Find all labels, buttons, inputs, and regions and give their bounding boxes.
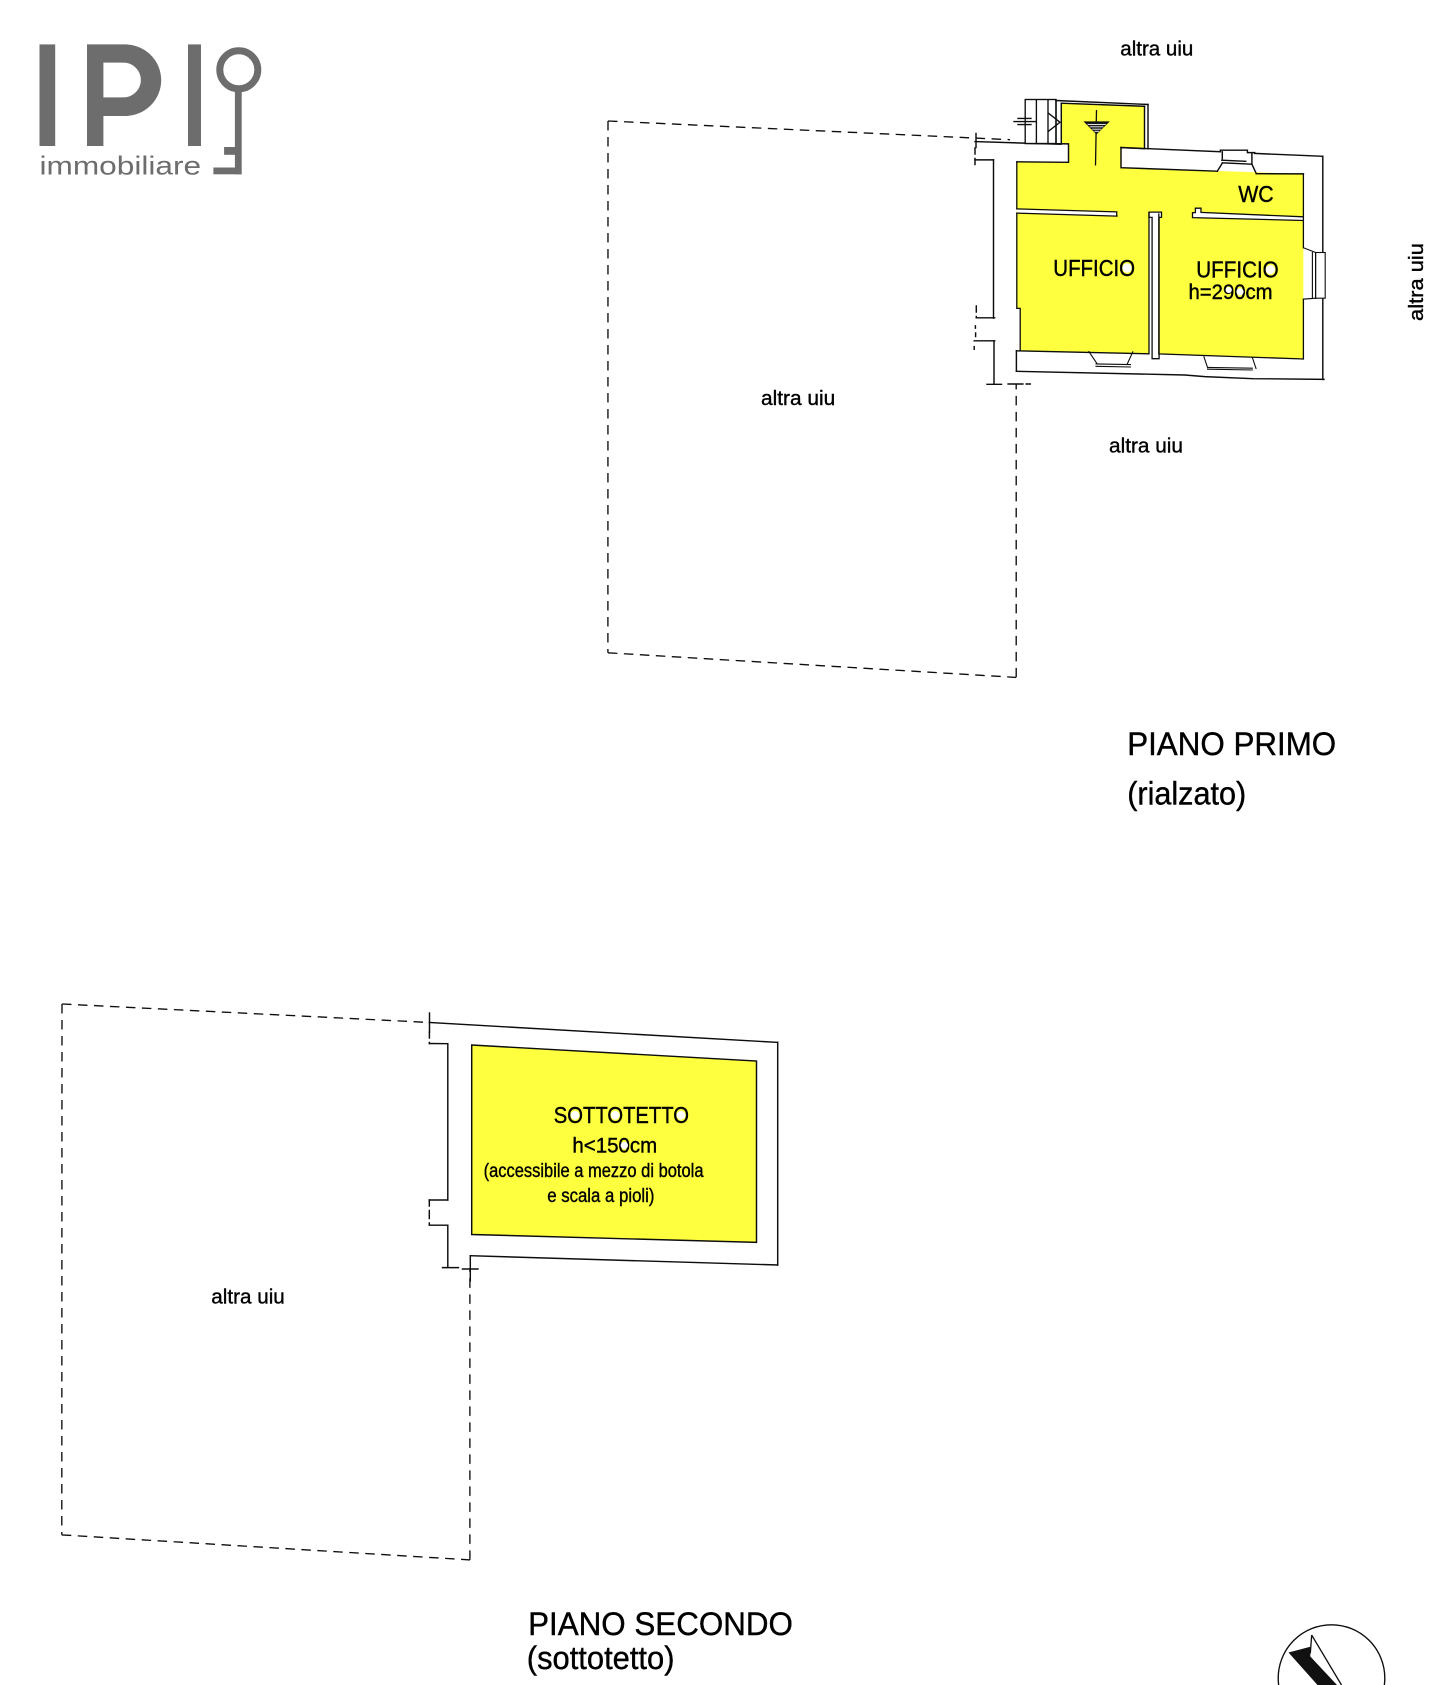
svg-text:altra uiu: altra uiu bbox=[1109, 435, 1183, 458]
svg-text:e scala a pioli): e scala a pioli) bbox=[547, 1185, 654, 1207]
svg-text:altra uiu: altra uiu bbox=[761, 387, 835, 410]
svg-text:PIANO PRIMO: PIANO PRIMO bbox=[1127, 726, 1336, 762]
svg-text:(sottotetto): (sottotetto) bbox=[527, 1640, 675, 1676]
svg-text:altra uiu: altra uiu bbox=[211, 1286, 284, 1309]
svg-text:WC: WC bbox=[1238, 181, 1274, 207]
svg-text:(rialzato): (rialzato) bbox=[1127, 776, 1246, 812]
svg-text:immobiliare: immobiliare bbox=[40, 150, 202, 180]
svg-text:h<150cm: h<150cm bbox=[572, 1133, 657, 1157]
svg-text:PIANO SECONDO: PIANO SECONDO bbox=[528, 1606, 793, 1642]
svg-text:(accessibile a mezzo di botola: (accessibile a mezzo di botola bbox=[484, 1160, 704, 1182]
svg-text:altra uiu: altra uiu bbox=[1120, 38, 1193, 61]
svg-text:altra uiu: altra uiu bbox=[1405, 243, 1428, 321]
